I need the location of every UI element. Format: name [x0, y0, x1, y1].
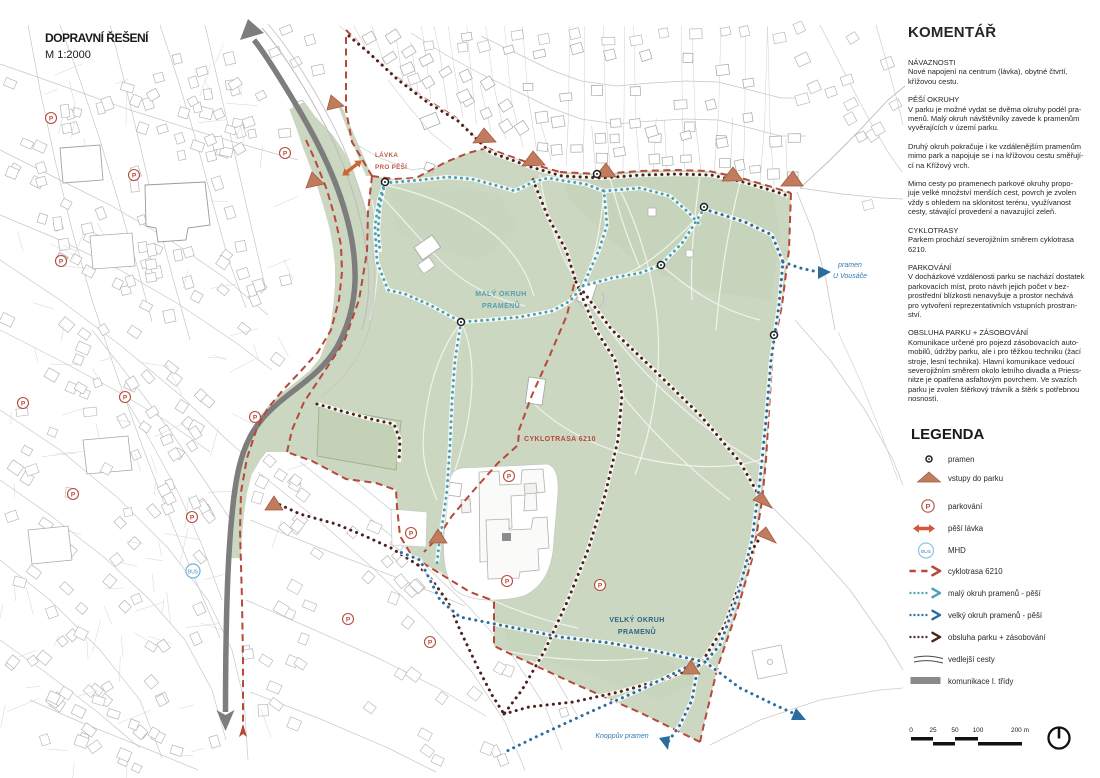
svg-text:pramen: pramen — [837, 262, 862, 269]
svg-text:CYKLOTRASA 6210: CYKLOTRASA 6210 — [524, 436, 596, 443]
svg-text:U Vousáče: U Vousáče — [833, 273, 867, 280]
svg-text:MALÝ OKRUH: MALÝ OKRUH — [475, 289, 526, 298]
svg-text:PRO PĚŠÍ: PRO PĚŠÍ — [375, 162, 407, 171]
svg-text:P: P — [428, 640, 433, 647]
svg-text:VELKÝ OKRUH: VELKÝ OKRUH — [609, 615, 664, 624]
svg-text:P: P — [71, 492, 76, 499]
svg-text:LEGENDA: LEGENDA — [911, 426, 985, 443]
svg-text:MHD: MHD — [948, 546, 966, 555]
svg-text:komunikace I. třídy: komunikace I. třídy — [948, 677, 1014, 686]
svg-text:P: P — [59, 259, 64, 266]
svg-text:velký okruh pramenů - pěší: velký okruh pramenů - pěší — [948, 611, 1043, 620]
svg-text:P: P — [49, 116, 54, 123]
svg-text:P: P — [925, 502, 930, 511]
svg-text:50: 50 — [951, 727, 959, 734]
svg-text:P: P — [283, 151, 288, 158]
svg-text:pěší lávka: pěší lávka — [948, 524, 984, 533]
svg-text:P: P — [123, 395, 128, 402]
svg-text:cyklotrasa 6210: cyklotrasa 6210 — [948, 567, 1003, 576]
svg-text:BUS: BUS — [921, 549, 931, 555]
svg-text:P: P — [253, 415, 258, 422]
svg-text:vstupy do parku: vstupy do parku — [948, 474, 1003, 483]
svg-text:malý okruh pramenů - pěší: malý okruh pramenů - pěší — [948, 589, 1042, 598]
svg-text:P: P — [507, 474, 512, 481]
svg-text:pramen: pramen — [948, 455, 974, 464]
svg-text:P: P — [21, 401, 26, 408]
svg-text:P: P — [132, 173, 137, 180]
svg-text:200 m: 200 m — [1011, 727, 1029, 734]
svg-text:vedlejší cesty: vedlejší cesty — [948, 655, 995, 664]
svg-text:BUS: BUS — [188, 570, 199, 576]
svg-text:obsluha parku + zásobování: obsluha parku + zásobování — [948, 633, 1047, 642]
svg-text:P: P — [505, 579, 510, 586]
svg-text:parkování: parkování — [948, 502, 983, 511]
svg-text:25: 25 — [929, 727, 937, 734]
svg-text:LÁVKA: LÁVKA — [375, 150, 398, 159]
svg-text:P: P — [190, 515, 195, 522]
svg-text:P: P — [409, 531, 414, 538]
svg-text:P: P — [346, 617, 351, 624]
svg-text:Knoppův pramen: Knoppův pramen — [595, 732, 648, 740]
svg-text:0: 0 — [909, 727, 913, 734]
svg-text:100: 100 — [973, 727, 984, 734]
svg-text:P: P — [598, 583, 603, 590]
